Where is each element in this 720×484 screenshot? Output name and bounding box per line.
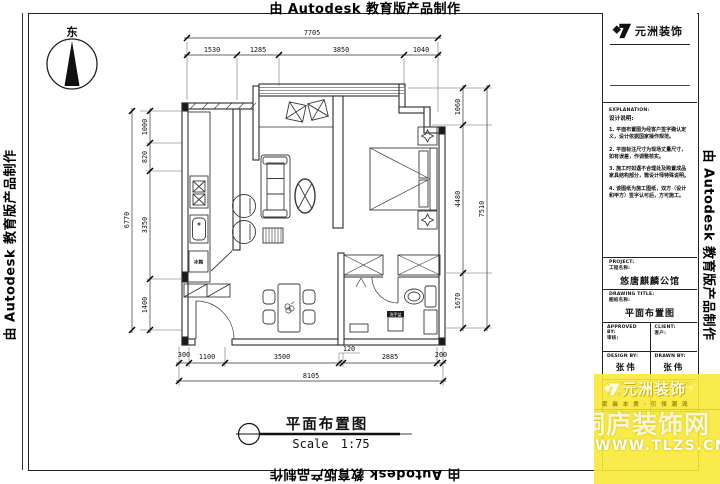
svg-text:3850: 3850 [333,46,349,54]
yuanzhou-logo-icon [602,381,620,397]
svg-text:1100: 1100 [199,353,215,361]
svg-text:2885: 2885 [382,353,398,361]
dim-bottom-overall: 8105 [303,372,319,380]
site-slogan: 家 装 本 质 · 引 领 潮 流 [594,400,720,410]
autodesk-watermark-left: 由 Autodesk 教育版产品制作 [0,149,19,340]
drawing-label-cn: 图纸名称: [609,297,691,303]
bathroom-door [372,277,398,303]
site-watermark-logo: 元洲装饰 ® [594,378,720,399]
dim-right: 1060 4480 1670 7510 [408,85,492,331]
design-note: 1. 平面布置图为经客户签字确认定义，设计依据国家操作规范。 [609,127,691,142]
bay-window-cushions [286,100,328,122]
radiator [263,228,283,243]
site-brand: 元洲装饰 [622,378,686,399]
svg-text:300: 300 [178,351,190,359]
svg-text:1670: 1670 [454,293,462,309]
svg-text:4480: 4480 [454,191,462,207]
design-note: 2. 平面标注尺寸为现场丈量尺寸，如有误差，作调整核实。 [609,147,691,162]
svg-text:3500: 3500 [274,353,290,361]
toilet [405,286,437,307]
svg-text:1285: 1285 [250,46,266,54]
project-cell: PROJECT: 工程名称: 悠唐麒麟公馆 [603,258,697,290]
bath-cabinet [424,310,437,334]
svg-text:3350: 3350 [141,217,149,233]
table-plant [285,302,294,313]
project-name: 悠唐麒麟公馆 [609,274,691,287]
site-url: WWW.TLZS.CN [595,438,720,454]
site-name: 桐庐装饰网 [594,412,720,438]
svg-text:1400: 1400 [141,297,149,313]
svg-text:1000: 1000 [141,119,149,135]
dim-left: 6770 1000 820 3350 1400 [123,108,183,333]
design-note: 4. 该图纸为施工图纸，双方（设计和甲方）签字认可后，方可施工。 [609,186,691,201]
company-logo-icon [610,21,632,40]
svg-text:820: 820 [141,151,149,163]
approved-cell: APPROVED BY: 审核: [603,323,650,351]
hanger-symbol [356,278,366,287]
entry-door [196,301,234,339]
explanation-heading-cn: 设计说明: [609,114,691,122]
company-logo-cell: 元洲装饰 [603,13,697,103]
dining-set [263,284,315,332]
project-label-cn: 工程名称: [609,265,691,271]
oval-side-table [295,179,315,213]
svg-text:120: 120 [343,345,355,353]
drawing-name: 平面布置图 [609,306,691,319]
client-cell: CLIENT: 客户: [650,323,698,351]
compass-needle [65,41,80,86]
caption-title: 平面布置图 [286,415,369,433]
svg-text:200: 200 [435,351,447,359]
dim-right-overall: 7510 [478,201,486,217]
washbasin: 洗手盆 [387,311,404,331]
drawing-sheet: 由 Autodesk 教育版产品制作 由 Autodesk 教育版产品制作 由 … [0,0,720,484]
bed [370,148,437,210]
explanation-heading-en: EXPLANATION: [609,108,691,113]
signature-line [610,85,690,86]
dim-bottom: 300 1100 3500 120 2885 200 8105 [176,345,447,386]
kitchen-door-leaf [211,251,232,271]
wardrobes [344,255,440,287]
designer-signature: 张伟 [607,361,646,373]
svg-text:1060: 1060 [454,99,462,115]
drafter-signature: 张伟 [655,361,694,373]
walls [182,84,445,345]
dim-left-overall: 6770 [123,212,131,228]
floor-plan-canvas: 东 [0,0,602,484]
company-name: 元洲装饰 [635,23,683,39]
svg-text:1530: 1530 [204,46,220,54]
design-note: 3. 施工时如遇不合理处及购置成品家具结构部分，需设计师特殊说明。 [609,166,691,181]
drawing-caption: 平面布置图 Scale 1:75 [236,415,412,451]
nightstand-bottom [418,211,437,229]
svg-text:1040: 1040 [413,46,429,54]
approved-client-row: APPROVED BY: 审核: CLIENT: 客户: [603,323,697,352]
washbasin-label: 洗手盆 [390,311,402,317]
kitchen-sink [190,215,208,243]
fridge-label: 冰箱 [194,259,204,266]
autodesk-watermark-bottom: 由 Autodesk 教育版产品制作 [269,466,460,484]
dim-top-overall: 7705 [304,29,320,37]
stove [190,176,208,208]
site-watermark: 元洲装饰 ® 家 装 本 质 · 引 领 潮 流 桐庐装饰网 WWW.TLZS.… [594,374,720,484]
explanation-cell: EXPLANATION: 设计说明: 1. 平面布置图为经客户签字确认定义，设计… [603,103,697,258]
floor-fixture [350,324,368,332]
north-compass: 东 [47,25,97,89]
fridge: 冰箱 [189,251,208,272]
autodesk-watermark-right: 由 Autodesk 教育版产品制作 [701,149,720,340]
drawing-title-cell: DRAWING TITLE: 图纸名称: 平面布置图 [603,290,697,323]
caption-scale: Scale 1:75 [292,437,369,451]
registered-mark: ® [688,385,694,392]
sofa [261,155,290,218]
kitchen-counter [188,112,210,282]
shoe-cabinet [184,284,230,297]
compass-label: 东 [66,25,78,39]
autodesk-watermark-top: 由 Autodesk 教育版产品制作 [269,0,460,17]
